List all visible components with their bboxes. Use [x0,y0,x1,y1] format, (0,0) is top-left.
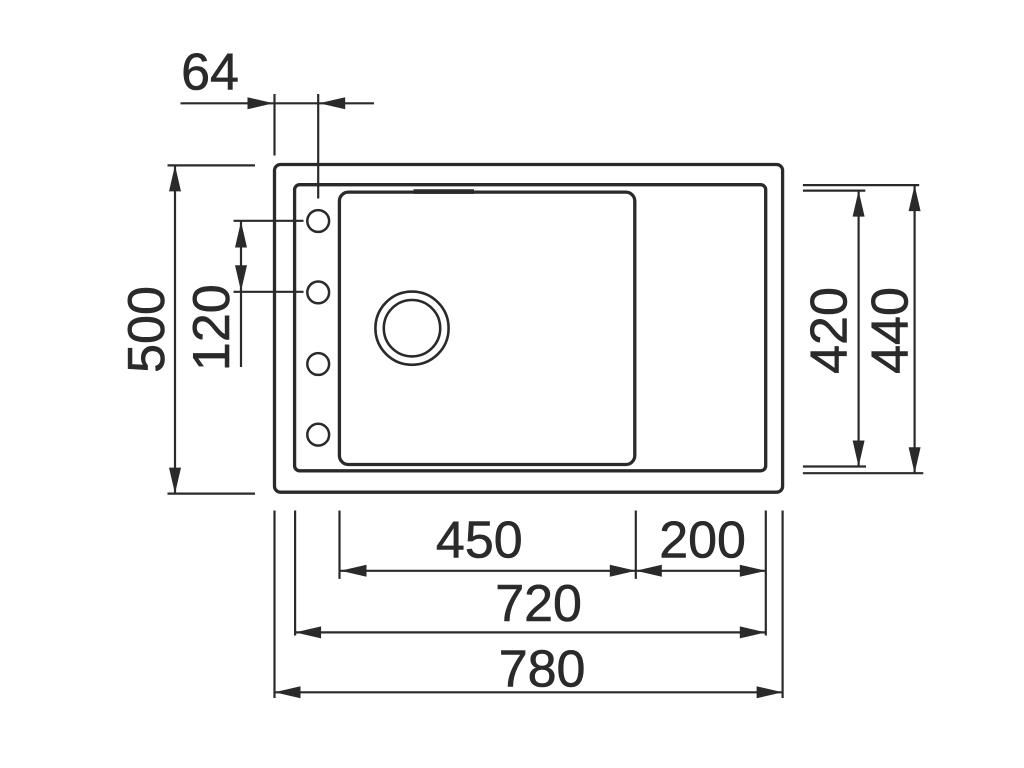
svg-text:450: 450 [436,512,523,570]
svg-text:780: 780 [499,640,586,698]
svg-text:200: 200 [659,512,746,570]
svg-text:120: 120 [183,284,241,371]
svg-text:500: 500 [118,286,176,373]
svg-text:440: 440 [862,287,920,374]
svg-text:720: 720 [495,575,582,633]
svg-text:420: 420 [801,287,859,374]
svg-text:64: 64 [181,44,239,102]
